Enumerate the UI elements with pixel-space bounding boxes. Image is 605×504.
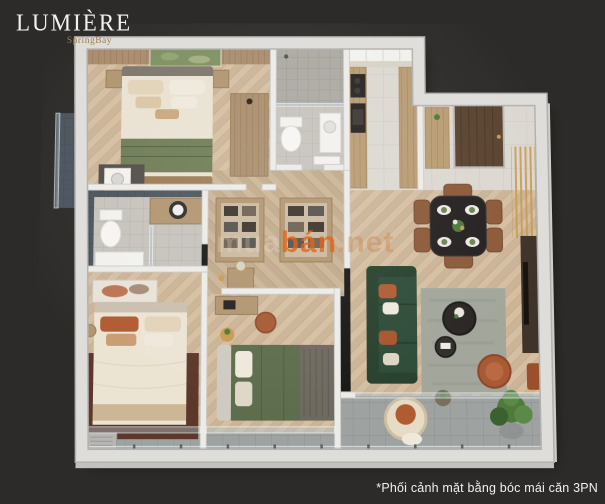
logo-subtitle: SpringBay xyxy=(16,36,112,46)
caption: *Phối cảnh mặt bằng bóc mái căn 3PN xyxy=(376,481,598,495)
light-overlay xyxy=(35,24,576,475)
render-canvas: LUMIÈRE SpringBay muabán.net *Phối cảnh … xyxy=(0,0,605,504)
floor-plan-render xyxy=(0,0,605,504)
logo: LUMIÈRE SpringBay xyxy=(16,10,112,46)
logo-title: LUMIÈRE xyxy=(16,9,112,36)
